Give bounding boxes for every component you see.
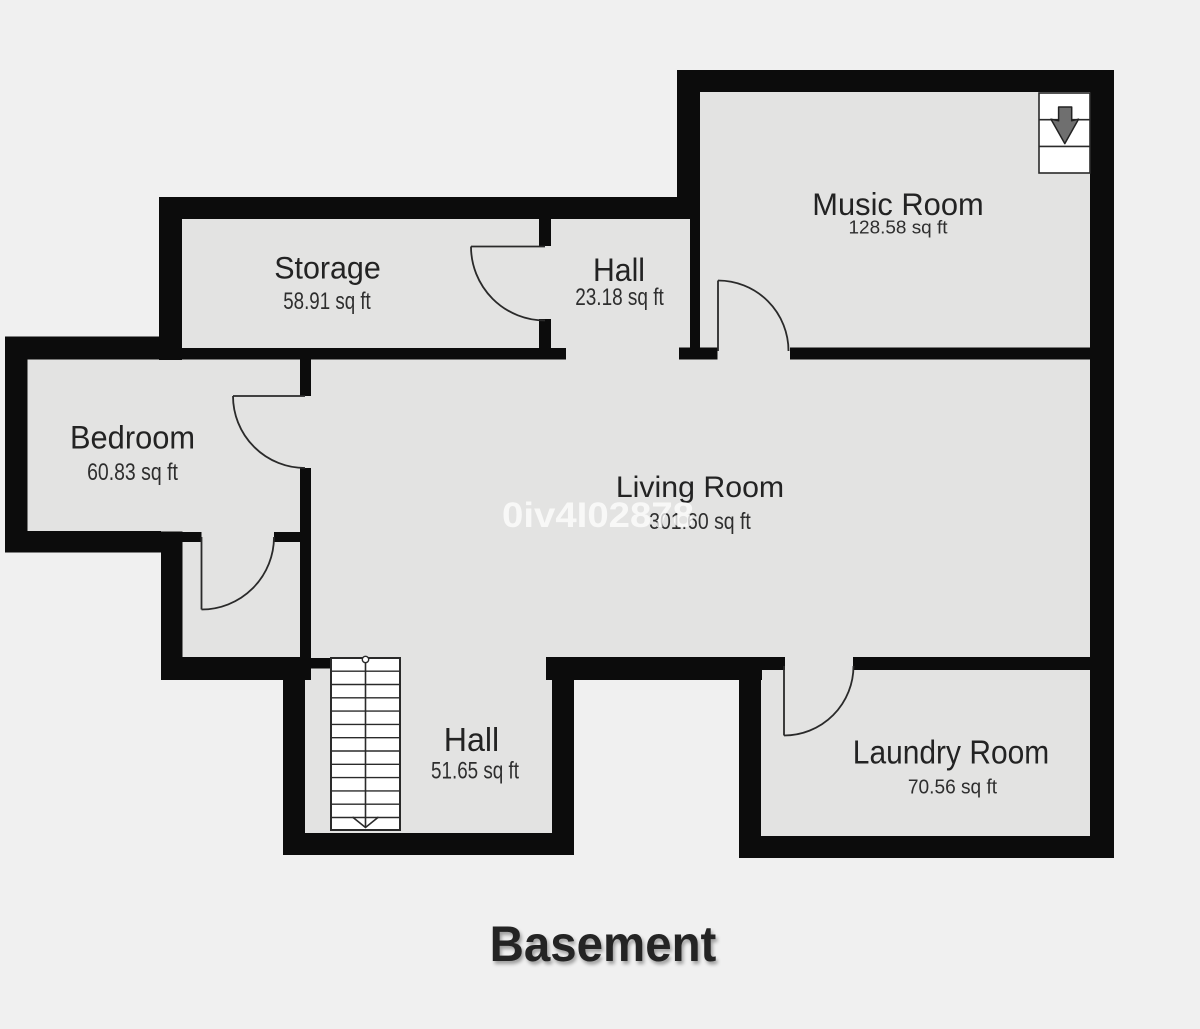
svg-text:Hall: Hall xyxy=(593,252,645,288)
svg-text:51.65 sq ft: 51.65 sq ft xyxy=(431,758,519,785)
svg-text:58.91 sq ft: 58.91 sq ft xyxy=(283,288,371,315)
svg-text:Bedroom: Bedroom xyxy=(70,420,195,456)
svg-text:Basement: Basement xyxy=(490,916,717,972)
svg-text:128.58 sq ft: 128.58 sq ft xyxy=(849,218,948,238)
svg-text:Laundry Room: Laundry Room xyxy=(853,734,1049,771)
svg-text:60.83 sq ft: 60.83 sq ft xyxy=(87,459,178,486)
svg-text:Hall: Hall xyxy=(444,721,499,758)
svg-text:Storage: Storage xyxy=(274,250,381,286)
svg-text:23.18 sq ft: 23.18 sq ft xyxy=(575,284,664,311)
svg-text:0iv4I02878: 0iv4I02878 xyxy=(502,496,694,535)
svg-text:70.56 sq ft: 70.56 sq ft xyxy=(908,777,998,799)
